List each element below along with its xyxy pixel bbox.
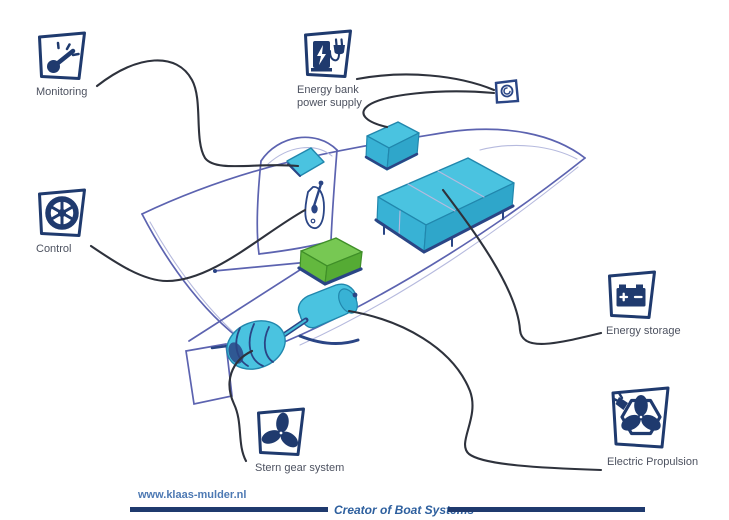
footer-rule-right (448, 507, 645, 512)
energy-bank-label-line1: Energy bank (297, 84, 362, 97)
electric-propulsion-label: Electric Propulsion (607, 456, 698, 469)
callout-monitoring: Monitoring (36, 30, 88, 99)
shore-power-outlet-icon (496, 81, 518, 103)
energy-storage-label: Energy storage (606, 325, 681, 338)
charging-station-plug-icon (302, 28, 354, 80)
throttle-lever (305, 181, 324, 228)
cable-energybank-to-outlet (357, 75, 494, 90)
energy-bank-label: Energy bank power supply (297, 84, 362, 110)
helm-wheel-icon (36, 187, 88, 239)
propeller-icon (255, 406, 307, 458)
cable-monitoring-to-panel (97, 60, 298, 166)
footer-tagline: Creator of Boat Systems (334, 503, 446, 517)
callout-stern-gear: Stern gear system (255, 406, 344, 475)
footer-rule-left (130, 507, 328, 512)
cable-outlet-to-energybank-box (363, 91, 494, 127)
monitoring-label: Monitoring (36, 86, 88, 99)
battery-bank-box (376, 158, 514, 252)
energy-bank-box (366, 122, 419, 170)
callout-energy-bank: Energy bank power supply (302, 28, 362, 110)
battery-icon (606, 269, 658, 321)
cable-control-to-throttle (91, 210, 305, 281)
converter-box (299, 238, 362, 284)
stern-gear-label: Stern gear system (255, 462, 344, 475)
callout-electric-propulsion: Electric Propulsion (609, 384, 698, 469)
gauge-icon (36, 30, 88, 82)
callout-energy-storage: Energy storage (606, 269, 681, 338)
boat-systems-diagram: Monitoring Control (0, 0, 729, 520)
callout-control: Control (36, 187, 88, 256)
instrument-panel (287, 148, 324, 176)
electric-motor (298, 284, 361, 343)
propeller-hexagon-plug-icon (609, 384, 673, 452)
control-label: Control (36, 243, 88, 256)
energy-bank-label-line2: power supply (297, 97, 362, 110)
cable-motor-to-electricpropulsion (349, 311, 601, 470)
website-link[interactable]: www.klaas-mulder.nl (138, 489, 246, 501)
